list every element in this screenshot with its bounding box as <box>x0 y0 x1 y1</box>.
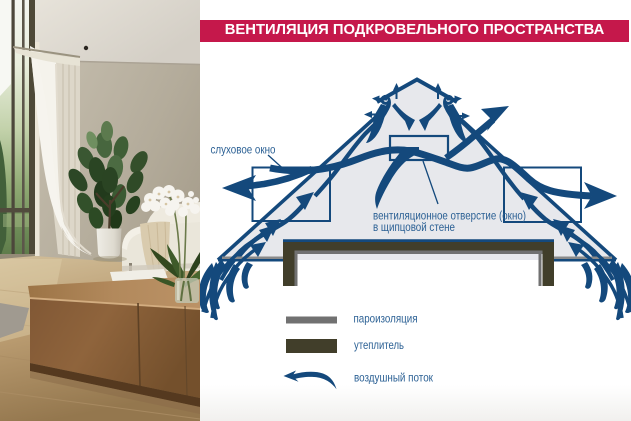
svg-text:воздушный поток: воздушный поток <box>354 371 433 385</box>
svg-text:утеплитель: утеплитель <box>354 338 404 352</box>
svg-text:пароизоляция: пароизоляция <box>354 312 418 326</box>
svg-text:в щипцовой стене: в щипцовой стене <box>373 220 455 234</box>
svg-text:слуховое окно: слуховое окно <box>211 143 276 157</box>
